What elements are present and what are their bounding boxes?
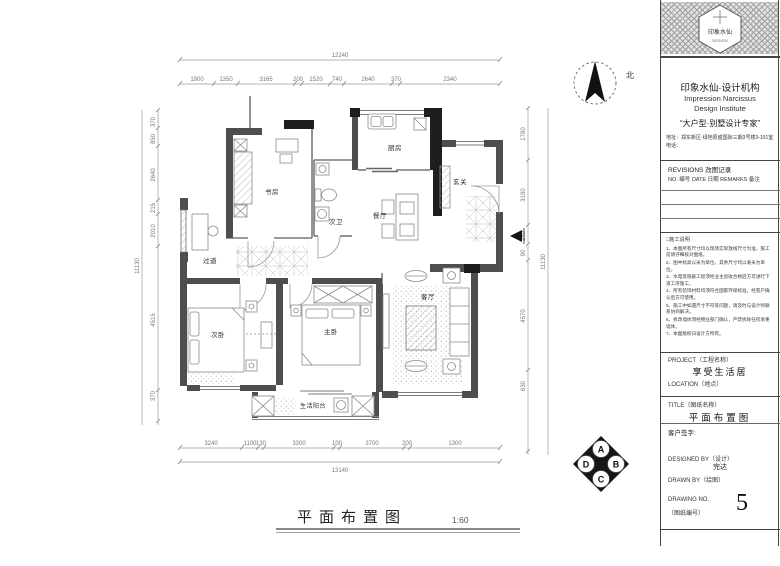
drawing-title-text: 平面布置图 (297, 509, 407, 526)
svg-text:11130: 11130 (541, 253, 547, 269)
company-slogan: “大户型·别墅设计专家” (660, 118, 780, 129)
elevation-index-symbol: A B C D (573, 436, 629, 492)
svg-text:13140: 13140 (332, 468, 349, 474)
svg-text:2010: 2010 (151, 224, 157, 238)
note-line: 2、图中标高以米为单位，其余尺寸均以毫米为单位。 (666, 260, 774, 273)
project-name: 享受生活居 (660, 365, 780, 378)
note-line: 1、本图所有尺寸均以现场实际放线尺寸为准，施工前请仔细核对图纸。 (666, 246, 774, 259)
svg-text:630: 630 (521, 380, 527, 391)
logo-sub-text: DESIGN (712, 38, 727, 43)
room-label-entry: 玄关 (453, 177, 467, 186)
construction-notes: □施工说明 1、本图所有尺寸均以现场实际放线尺寸为准，施工前请仔细核对图纸。 2… (666, 237, 774, 339)
north-label: 北 (626, 71, 634, 80)
note-line: 6、拆改墙体须经物业部门确认，严禁拆除任何承重墙体。 (666, 317, 774, 330)
svg-text:3700: 3700 (365, 441, 379, 447)
svg-text:740: 740 (332, 77, 343, 83)
dim-label: 12240 (332, 53, 349, 59)
room-label-study: 书房 (265, 187, 279, 196)
svg-text:3240: 3240 (204, 441, 218, 447)
svg-text:200: 200 (293, 77, 304, 83)
index-d: D (583, 460, 590, 470)
note-line: 7、本图版权归设计方所有。 (666, 331, 774, 338)
study-shelf (234, 152, 252, 204)
north-arrow-needle (585, 61, 605, 102)
svg-text:11130: 11130 (135, 257, 141, 273)
drawn-by-label: DRAWN BY（绘图） (668, 475, 724, 484)
toilet-tank (315, 189, 321, 201)
svg-text:215: 215 (151, 202, 157, 213)
client-signature-label: 客户签字: (668, 427, 696, 437)
svg-text:100: 100 (332, 441, 343, 447)
drawing-no-label2: （图纸编号） (668, 508, 704, 517)
sheet-title: 平面布置图 (660, 410, 780, 424)
revisions-title: REVISIONS 改图记录 (668, 164, 731, 174)
svg-text:130: 130 (256, 441, 267, 447)
title-block: 印象水仙 DESIGN 印象水仙·设计机构 Impression Narciss… (660, 0, 780, 566)
sofa (450, 288, 469, 356)
notes-title: □施工说明 (666, 237, 774, 245)
divider (660, 529, 780, 530)
drawing-title: 平面布置图 1:60 (276, 509, 520, 533)
note-line: 4、所有装饰材料均须符合国家环保标准，经客户确认后方可使用。 (666, 288, 774, 301)
company-address: 地址：郑东新区·绿地原盛国际三期3号楼3-101室 电话： (666, 135, 774, 150)
svg-text:370: 370 (151, 390, 157, 401)
room-label-bath2: 次卫 (329, 217, 343, 226)
revision-row (660, 218, 780, 219)
svg-text:370: 370 (151, 116, 157, 127)
divider (660, 56, 780, 58)
svg-text:2640: 2640 (151, 168, 157, 182)
study-desk (276, 139, 298, 152)
divider (660, 352, 780, 353)
divider (660, 396, 780, 397)
index-c: C (598, 475, 605, 485)
entry-marker (510, 228, 524, 244)
divider (660, 160, 780, 161)
svg-text:1350: 1350 (219, 77, 233, 83)
svg-text:3190: 3190 (521, 188, 527, 202)
logo-text: 印象水仙 (708, 28, 732, 36)
svg-text:1780: 1780 (521, 127, 527, 141)
svg-text:4515: 4515 (151, 313, 157, 327)
note-line: 5、施工中如遇尺寸不符等问题，请及时与设计师联系协商解决。 (666, 303, 774, 316)
svg-text:4570: 4570 (521, 309, 527, 323)
room-label-kitchen: 厨房 (388, 143, 402, 152)
svg-text:200: 200 (402, 441, 413, 447)
company-name-en2: Design Institute (660, 104, 780, 113)
coffee-table (406, 306, 436, 350)
company-logo: 印象水仙 DESIGN (697, 4, 743, 54)
drawing-number: 5 (722, 490, 762, 517)
divider (660, 423, 780, 424)
logo-band: 印象水仙 DESIGN (661, 2, 778, 54)
project-label: PROJECT（工程名称） (668, 355, 732, 364)
room-label-bed2: 次卧 (211, 330, 225, 339)
room-label-living: 客厅 (421, 292, 435, 301)
north-arrow: 北 (574, 61, 634, 104)
drawing-no-label: DRAWING NO. (668, 497, 709, 503)
svg-text:1900: 1900 (190, 77, 204, 83)
revision-row (660, 204, 780, 205)
company-name-en1: Impression Narcissus (660, 94, 780, 103)
svg-text:90: 90 (521, 249, 527, 256)
svg-text:3165: 3165 (259, 77, 273, 83)
svg-text:850: 850 (151, 133, 157, 144)
location-label: LOCATION（地点） (668, 379, 722, 388)
designer-name: 完达 (660, 462, 780, 472)
wardrobe (314, 286, 372, 303)
room-label-balcony: 生活阳台 (300, 402, 326, 410)
revisions-header: NO. 编号 DATE 日期 REMARKS 备注 (668, 175, 760, 183)
tv-cabinet (383, 294, 389, 348)
svg-text:1300: 1300 (448, 441, 462, 447)
room-label-dining: 餐厅 (373, 211, 387, 220)
svg-text:2640: 2640 (361, 77, 375, 83)
index-b: B (613, 460, 620, 470)
sheet-title-label: TITLE（图纸名称） (668, 400, 720, 409)
divider (660, 232, 780, 233)
svg-text:370: 370 (391, 77, 402, 83)
svg-text:3300: 3300 (292, 441, 306, 447)
room-label-corridor: 过道 (203, 256, 217, 265)
company-name-cn: 印象水仙·设计机构 (660, 80, 780, 94)
floor-plan: 书房 次卫 厨房 餐厅 玄关 过道 次卧 主卧 客厅 生活阳台 12240 19… (0, 0, 660, 566)
index-a: A (598, 445, 605, 455)
shoe-cabinet (440, 166, 450, 208)
room-label-bed1: 主卧 (324, 327, 338, 336)
drawing-scale: 1:60 (452, 515, 469, 525)
revision-row (660, 190, 780, 191)
svg-text:2340: 2340 (443, 77, 457, 83)
toilet-bowl (322, 189, 337, 201)
note-line: 3、水电等隐蔽工程须经业主验收合格后方可进行下道工序施工。 (666, 274, 774, 287)
svg-text:1520: 1520 (309, 77, 323, 83)
